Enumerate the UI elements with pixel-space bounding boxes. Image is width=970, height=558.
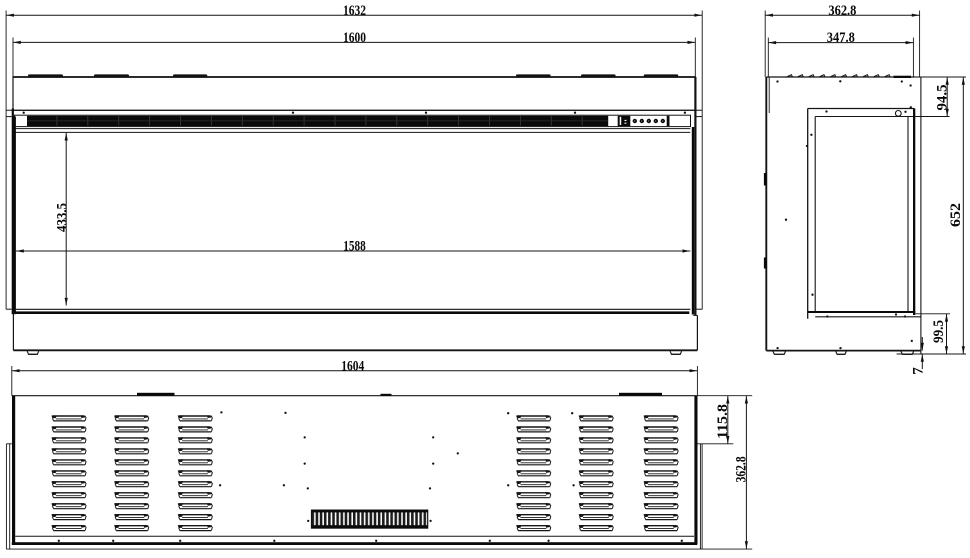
svg-text:347.8: 347.8 — [827, 30, 855, 46]
svg-text:433.5: 433.5 — [54, 203, 70, 232]
svg-text:362.8: 362.8 — [828, 3, 856, 19]
svg-text:99.5: 99.5 — [931, 320, 947, 343]
svg-text:1600: 1600 — [343, 30, 366, 46]
svg-text:1604: 1604 — [341, 358, 364, 374]
svg-text:1588: 1588 — [343, 239, 366, 255]
svg-text:115.8: 115.8 — [715, 404, 731, 439]
svg-text:1632: 1632 — [343, 3, 366, 19]
svg-text:652: 652 — [948, 203, 964, 227]
svg-text:7: 7 — [911, 367, 927, 375]
svg-text:94.5: 94.5 — [934, 85, 950, 111]
svg-text:362.8: 362.8 — [734, 456, 750, 482]
